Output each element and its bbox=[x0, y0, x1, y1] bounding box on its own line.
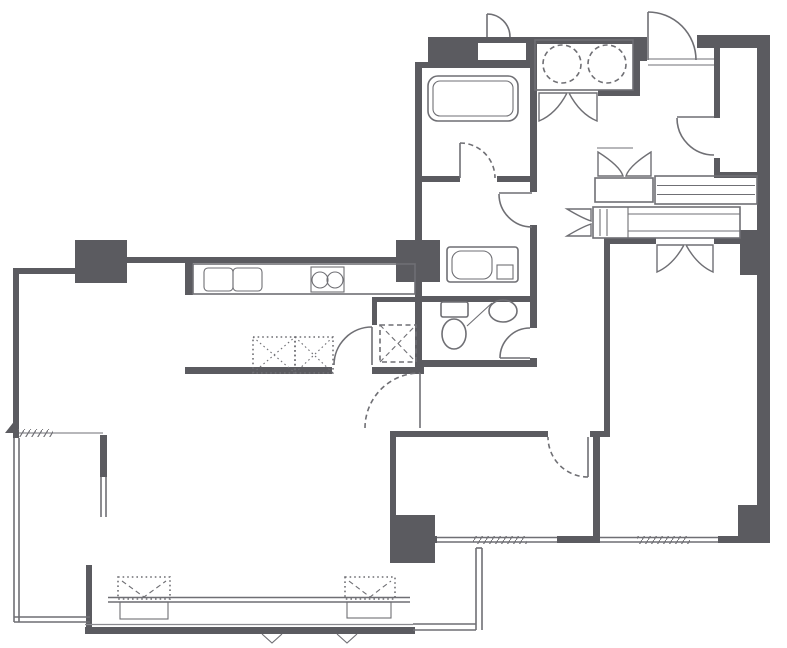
entry-door-arc bbox=[648, 12, 696, 60]
stove-burner-right bbox=[327, 272, 343, 288]
closet-bifold-up-left bbox=[598, 152, 623, 176]
stove-burner-left bbox=[312, 272, 328, 288]
rail-notch-right bbox=[337, 634, 357, 643]
sink-basin-right bbox=[233, 268, 262, 291]
wall-corridor-west-upper bbox=[530, 37, 537, 192]
wall-bedroom-south bbox=[718, 536, 770, 543]
bedroom-double-door-right bbox=[686, 245, 713, 272]
dryer-icon bbox=[588, 45, 626, 83]
wall-bedroom-west-upper bbox=[604, 244, 610, 437]
washroom bbox=[447, 193, 532, 282]
wall-counter-end bbox=[185, 257, 193, 295]
wall-corridor-west-mid bbox=[530, 225, 537, 328]
toilet-hand-basin bbox=[489, 300, 517, 322]
bedroom2-door-arc bbox=[548, 437, 588, 477]
bathtub-inner bbox=[433, 81, 513, 116]
toilet-tank bbox=[441, 302, 468, 317]
refrigerator-x bbox=[380, 325, 416, 362]
wall-storage-west bbox=[714, 48, 720, 118]
wall-fridge-nook-left bbox=[372, 297, 377, 325]
sink-basin-left bbox=[204, 268, 233, 291]
wardrobe-band bbox=[593, 207, 740, 238]
wall-kitchen-south-right bbox=[372, 367, 424, 374]
wall-bathroom-top bbox=[415, 62, 530, 68]
wall-storage-bottom bbox=[714, 172, 770, 178]
storage-door-arc bbox=[677, 118, 714, 155]
wall-sanitary-west bbox=[415, 62, 422, 367]
bathtub-outer bbox=[428, 76, 518, 121]
floor-plan-drawing bbox=[0, 0, 787, 648]
laundry-box bbox=[535, 40, 633, 90]
wall-bedroom2-south-a bbox=[390, 536, 437, 543]
pillar-north-left bbox=[75, 240, 127, 283]
wall-right-outer bbox=[757, 35, 770, 543]
wall-entry-jamb bbox=[640, 37, 647, 61]
living-door-arc bbox=[365, 373, 420, 428]
wall-living-west-upper bbox=[100, 435, 107, 477]
meter-box-niche bbox=[478, 43, 526, 60]
wall-storage-west-stub bbox=[714, 158, 720, 174]
hall-doors bbox=[365, 373, 588, 477]
shoe-closet-box bbox=[595, 178, 653, 202]
shutter-sill-left bbox=[120, 602, 168, 619]
wardrobe-bifold-top bbox=[567, 209, 591, 221]
wall-bedroom2-north-a bbox=[390, 431, 548, 437]
wall-bedroom-north-a bbox=[604, 238, 656, 244]
corner-counter bbox=[467, 303, 492, 326]
washroom-door-arc bbox=[499, 194, 532, 227]
wall-west-top bbox=[13, 268, 77, 274]
closets bbox=[567, 152, 757, 272]
level-mark-triangle bbox=[5, 419, 16, 433]
wall-bedroom2-west bbox=[390, 437, 396, 517]
toilet-room bbox=[441, 300, 530, 358]
bedroom-window-hatch bbox=[637, 536, 690, 544]
pillar-center bbox=[396, 240, 440, 282]
meter-door-arc bbox=[487, 14, 510, 37]
kitchen-door-arc bbox=[334, 327, 372, 365]
bedroom-double-door-left bbox=[657, 245, 684, 272]
pillar-right-mid bbox=[740, 230, 757, 275]
shutter-box-left bbox=[118, 577, 170, 599]
balcony-opening-hatch bbox=[18, 429, 53, 437]
wall-toilet-bottom bbox=[415, 360, 537, 367]
wall-bedroom-divider bbox=[593, 437, 600, 543]
wall-bedroom-north-b bbox=[714, 238, 745, 244]
laundry-closet bbox=[535, 40, 633, 121]
vanity-cabinet bbox=[497, 265, 513, 279]
shutter-v-right bbox=[349, 581, 391, 597]
bathroom-door-opening bbox=[460, 176, 497, 182]
wall-wash-toilet-divider bbox=[415, 296, 537, 302]
shelf-closet bbox=[655, 176, 757, 204]
wall-bedroom2-south-b bbox=[557, 536, 600, 543]
balcony-rail-main bbox=[85, 627, 415, 634]
wall-fridge-nook-top bbox=[377, 297, 422, 302]
floor-plan-page bbox=[0, 0, 787, 648]
toilet-bowl bbox=[442, 319, 466, 349]
wall-laundry-east bbox=[633, 37, 640, 92]
rail-notch-left bbox=[262, 634, 282, 643]
wardrobe-bifold-bottom bbox=[567, 224, 591, 236]
wall-west-outer bbox=[13, 268, 19, 438]
laundry-door-right bbox=[569, 93, 597, 121]
closet-bifold-up-right bbox=[626, 152, 651, 176]
shutter-sill-right bbox=[347, 602, 391, 618]
toilet-door-arc bbox=[500, 328, 530, 358]
wall-bedroom2-north-b bbox=[590, 431, 604, 437]
kitchen bbox=[193, 264, 416, 373]
shutter-v-left bbox=[122, 581, 166, 597]
bedroom2-window-hatch bbox=[473, 536, 527, 544]
laundry-door-left bbox=[539, 93, 567, 121]
wall-under-laundry bbox=[598, 90, 640, 96]
bathroom bbox=[428, 76, 518, 178]
shutter-box-right bbox=[345, 577, 395, 599]
wall-kitchen-north bbox=[127, 257, 398, 263]
bath-door-arc bbox=[460, 143, 495, 178]
wash-basin bbox=[452, 251, 492, 279]
entry-area bbox=[487, 12, 714, 155]
windows bbox=[18, 429, 718, 602]
wall-corridor-west-stub bbox=[530, 358, 537, 367]
washer-icon bbox=[543, 45, 581, 83]
